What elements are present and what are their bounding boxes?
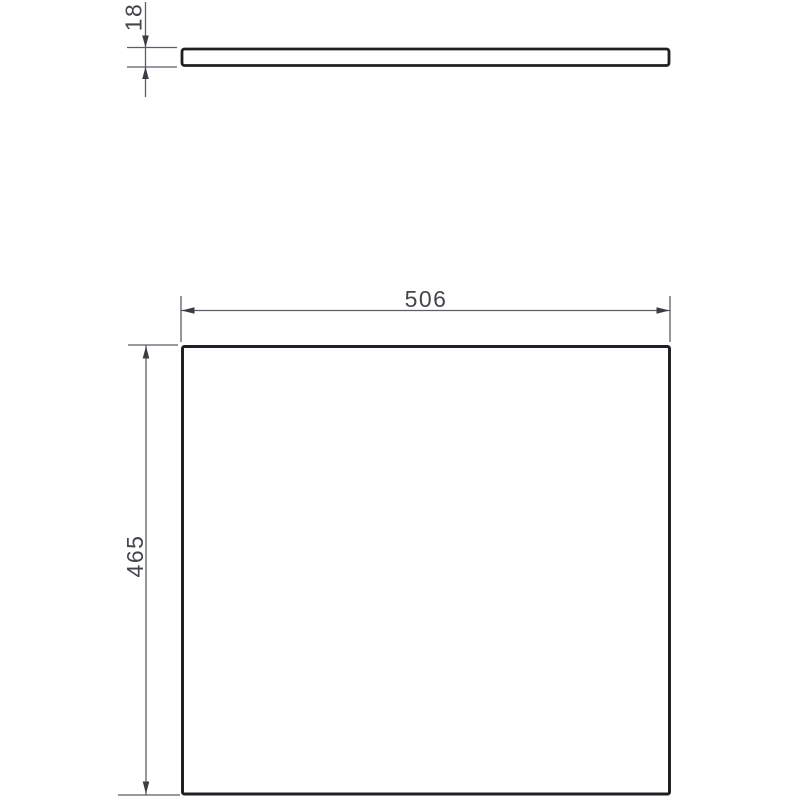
arrow-down-icon bbox=[142, 36, 149, 48]
height-label: 465 bbox=[122, 535, 148, 578]
width-label: 506 bbox=[405, 286, 448, 312]
arrow-down-icon bbox=[143, 782, 150, 795]
panel-face bbox=[183, 347, 670, 795]
thickness-label: 18 bbox=[121, 3, 147, 32]
arrow-left-icon bbox=[182, 307, 195, 314]
dimension-height: 465 bbox=[118, 345, 180, 795]
front-view-group: 506 465 bbox=[118, 286, 670, 795]
arrow-right-icon bbox=[657, 307, 670, 314]
dimension-width: 506 bbox=[181, 286, 670, 342]
top-view-group: 18 bbox=[121, 2, 670, 97]
panel-edge-profile bbox=[182, 49, 669, 66]
arrow-up-icon bbox=[142, 67, 149, 79]
drawing-canvas: 18 506 465 bbox=[0, 0, 800, 800]
technical-drawing: 18 506 465 bbox=[0, 0, 800, 800]
dimension-thickness: 18 bbox=[121, 2, 178, 97]
arrow-up-icon bbox=[143, 346, 150, 359]
